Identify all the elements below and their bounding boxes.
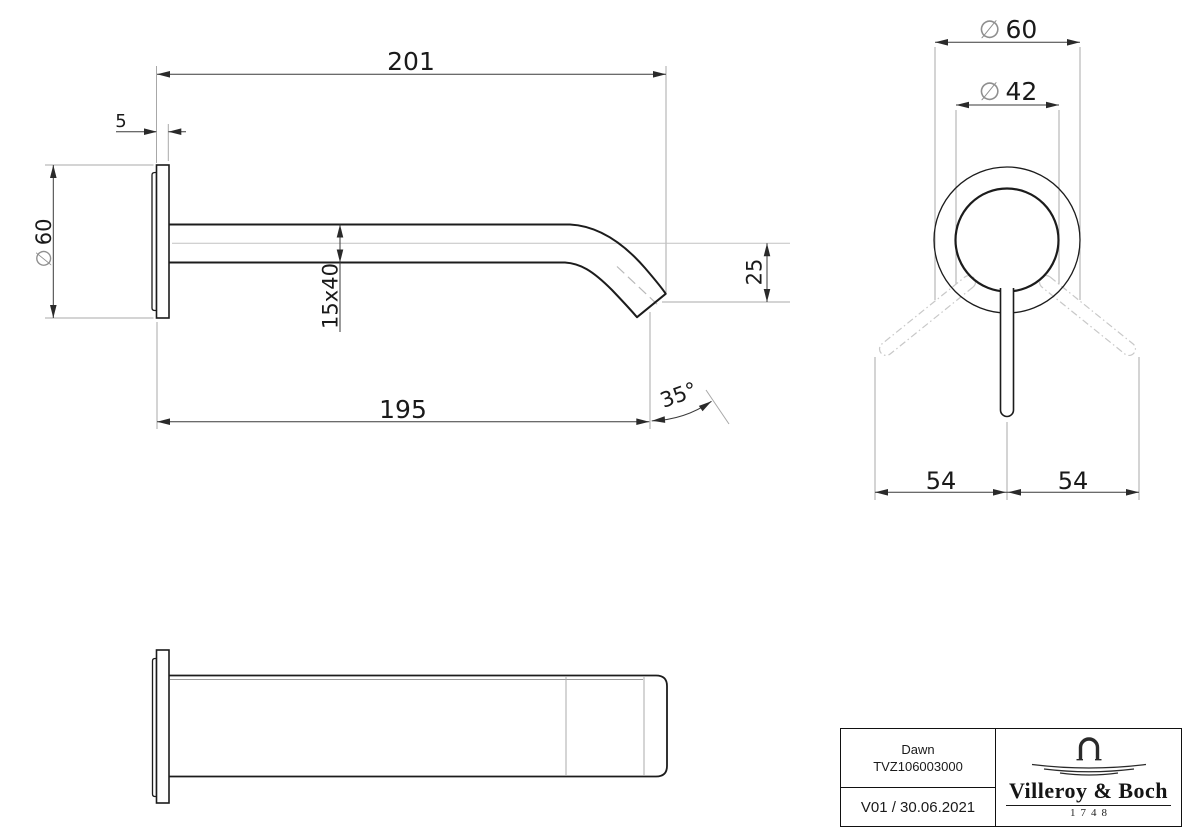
brand-logo-cell: Villeroy & Boch 1748 (996, 729, 1181, 826)
dim-swing-left: 54 (926, 467, 957, 495)
wall-flange-top (157, 650, 170, 803)
outlet-axis-dash (617, 267, 659, 307)
faucet-ripples-icon (1019, 734, 1159, 778)
diameter-value: 42 (1005, 77, 1037, 106)
top-view (153, 650, 668, 803)
dim-length-to-outlet: 195 (379, 395, 427, 424)
product-info-cell: Dawn TVZ106003000 (841, 729, 995, 788)
diameter-symbol: ∅ (979, 77, 1001, 106)
title-block: Dawn TVZ106003000 V01 / 30.06.2021 Ville… (840, 728, 1182, 827)
diameter-symbol: ∅ (979, 15, 1001, 44)
title-block-left-column: Dawn TVZ106003000 V01 / 30.06.2021 (841, 729, 996, 826)
wall-flange (157, 165, 170, 318)
diameter-value: 60 (1005, 15, 1037, 44)
phantom-handle-left (877, 273, 978, 358)
front-view: ∅60 ∅42 54 54 (875, 15, 1139, 500)
dim-flange-offset: 5 (115, 111, 126, 132)
spout-body (169, 225, 666, 318)
dim-escutcheon-diameter: ∅60 (979, 15, 1038, 44)
spout-bend-tangent-lines (566, 676, 644, 776)
front-extension-lines (875, 47, 1139, 500)
technical-drawing-page: 201 5 ∅60 15x40 25 195 35° (0, 0, 1185, 835)
handle-rosette-circle (956, 189, 1059, 292)
dim-spout-section: 15x40 (319, 263, 343, 329)
brand-year: 1748 (1065, 807, 1112, 819)
product-name: Dawn (901, 741, 934, 758)
dim-outlet-drop: 25 (743, 259, 767, 286)
dim-swing-right: 54 (1058, 467, 1089, 495)
diameter-symbol: ∅ (32, 249, 56, 267)
dim-total-length: 201 (387, 47, 435, 76)
dim-outlet-angle: 35° (657, 377, 700, 412)
handle-stem (1001, 288, 1014, 417)
brand-name: Villeroy & Boch (1006, 778, 1171, 806)
dim-handle-diameter: ∅42 (979, 77, 1038, 106)
spout-top-outline (169, 676, 667, 777)
phantom-handle-right (1037, 273, 1138, 358)
dim-flange-diameter: ∅60 (32, 218, 56, 267)
technical-drawing-canvas: 201 5 ∅60 15x40 25 195 35° (0, 0, 1185, 835)
side-view: 201 5 ∅60 15x40 25 195 35° (32, 47, 790, 429)
article-number: TVZ106003000 (873, 758, 963, 775)
diameter-value: 60 (32, 218, 56, 245)
version-date: V01 / 30.06.2021 (841, 788, 995, 826)
spout-side-outline (152, 165, 666, 318)
